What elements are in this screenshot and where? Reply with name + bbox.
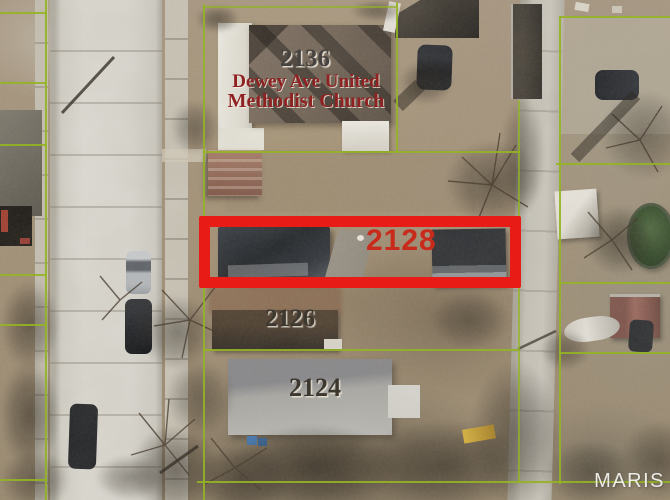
parcel-line [559, 16, 561, 484]
parcel-line [0, 82, 46, 84]
parcel-line [0, 12, 46, 14]
church-yard [225, 150, 475, 212]
yard-debris [612, 6, 622, 13]
vehicle-shadow [398, 60, 453, 105]
parcel-line [203, 6, 397, 8]
parcel-line [203, 151, 520, 153]
label-highlight-number: 2128 [366, 226, 437, 256]
parcel-line [0, 274, 46, 276]
street-pavement [50, 0, 162, 500]
church-steps [208, 150, 262, 196]
parcel-line [0, 479, 46, 481]
label-church-name-line1: Dewey Ave United [222, 72, 390, 91]
maris-watermark: MARIS [594, 470, 665, 493]
parked-car [628, 319, 654, 353]
aerial-map: 2136 Dewey Ave United Methodist Church 2… [0, 0, 670, 500]
parcel-line [559, 16, 670, 18]
label-house-2124: 2124 [280, 375, 350, 401]
parcel-line [559, 352, 670, 354]
parked-car [126, 251, 151, 294]
tree-shadow [430, 290, 510, 350]
building-detail [20, 238, 30, 244]
parcel-line [0, 144, 46, 146]
tree-shadow [540, 330, 590, 370]
tree-shadow [585, 205, 655, 275]
building-detail [1, 210, 8, 232]
church-white-roof [218, 128, 264, 150]
parcel-line [0, 324, 46, 326]
garage-roof [511, 4, 542, 99]
parking-lot [0, 110, 42, 216]
parcel-line [396, 2, 398, 153]
label-house-2126: 2126 [256, 306, 324, 331]
highlight-box-2128 [199, 216, 521, 288]
tree-shadow [500, 95, 545, 215]
parked-car [68, 404, 98, 470]
parcel-line [559, 282, 670, 284]
parcel-line [518, 100, 520, 482]
tree-shadow [170, 100, 220, 155]
tree-shadow [195, 5, 240, 33]
tree-shadow [95, 455, 165, 500]
parcel-line [45, 0, 47, 500]
parcel-line [203, 349, 518, 351]
church-annex-roof [342, 121, 389, 151]
tree-shadow [165, 360, 235, 435]
roof-detail [324, 339, 342, 349]
label-church-name-line2: Methodist Church [222, 91, 390, 111]
parcel-line [556, 163, 670, 165]
outbuilding-roof [388, 385, 420, 418]
label-church-number: 2136 [255, 46, 355, 71]
